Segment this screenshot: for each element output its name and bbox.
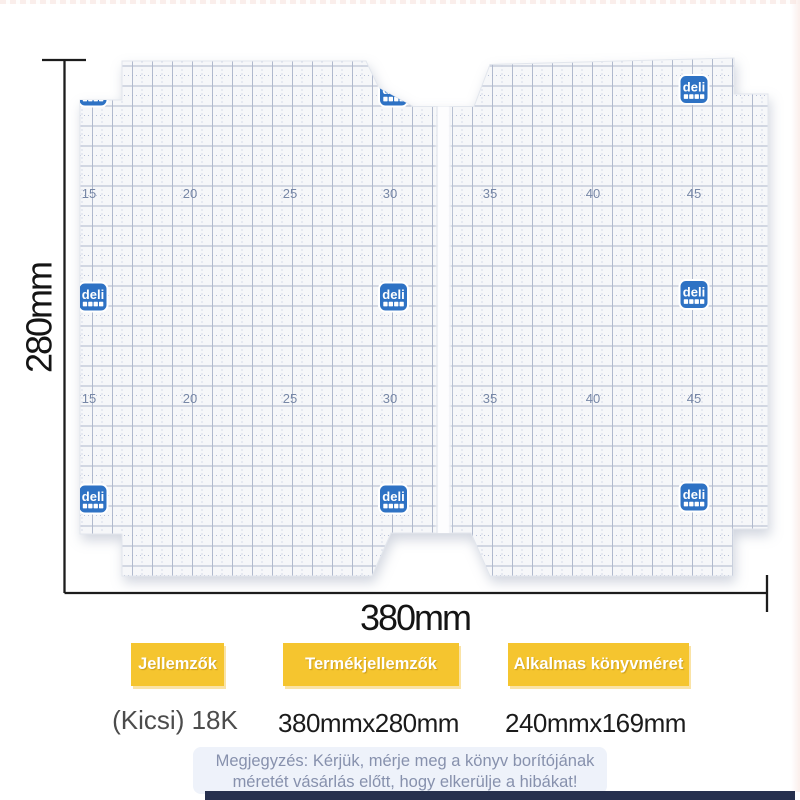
svg-text:30: 30 (383, 391, 397, 406)
svg-text:40: 40 (586, 391, 600, 406)
svg-text:20: 20 (183, 391, 197, 406)
svg-text:45: 45 (687, 391, 701, 406)
svg-text:30: 30 (383, 186, 397, 201)
svg-text:25: 25 (283, 186, 297, 201)
svg-text:40: 40 (586, 186, 600, 201)
svg-text:15: 15 (82, 186, 96, 201)
svg-text:deli: deli (683, 487, 705, 502)
svg-text:deli: deli (382, 82, 404, 97)
svg-text:35: 35 (483, 391, 497, 406)
svg-text:15: 15 (82, 391, 96, 406)
svg-text:deli: deli (82, 82, 104, 97)
svg-text:deli: deli (382, 489, 404, 504)
svg-text:25: 25 (283, 391, 297, 406)
svg-text:deli: deli (82, 489, 104, 504)
svg-text:deli: deli (683, 80, 705, 95)
svg-text:280mm: 280mm (19, 263, 60, 373)
svg-text:deli: deli (382, 287, 404, 302)
svg-text:35: 35 (483, 186, 497, 201)
svg-text:deli: deli (683, 285, 705, 300)
svg-text:45: 45 (687, 186, 701, 201)
svg-text:20: 20 (183, 186, 197, 201)
svg-text:deli: deli (82, 287, 104, 302)
svg-text:380mm: 380mm (360, 597, 470, 638)
